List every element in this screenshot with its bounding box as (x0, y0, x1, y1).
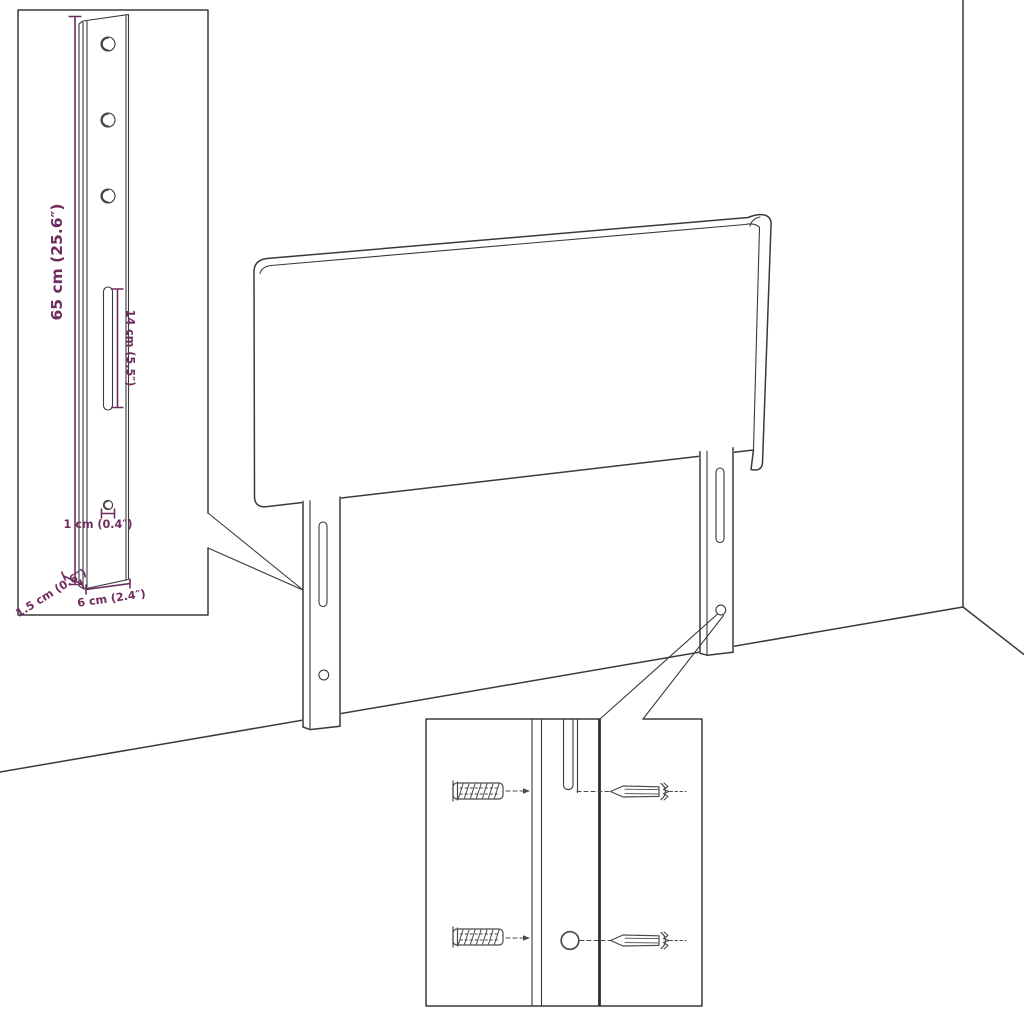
diagram-canvas: 65 cm (25.6″) 14 cm (5.5″) 1 cm (0.4″) 6… (0, 0, 1024, 1024)
dim-slot-label: 14 cm (5.5″) (124, 310, 137, 387)
left-leg-fill (302, 494, 341, 732)
dim-height-label: 65 cm (25.6″) (48, 203, 66, 320)
dim-hole-label: 1 cm (0.4″) (64, 518, 133, 531)
headboard-left-leg (302, 494, 341, 732)
